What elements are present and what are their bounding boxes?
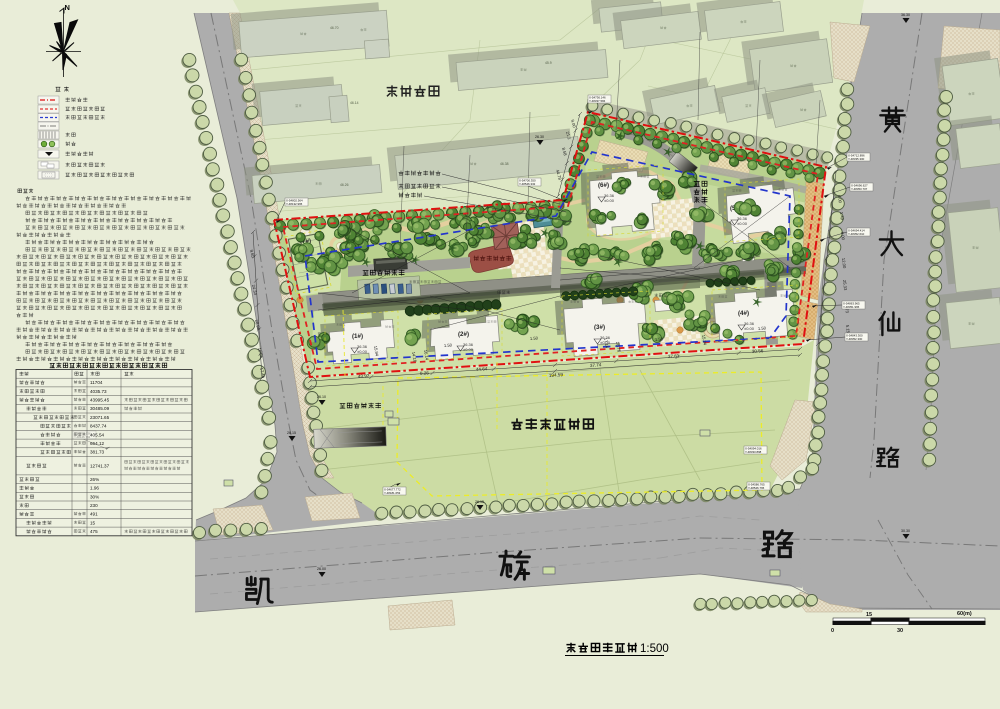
svg-text:4.00: 4.00 — [837, 195, 843, 204]
svg-text:26.10: 26.10 — [317, 395, 326, 399]
svg-text:30.56: 30.56 — [752, 348, 764, 354]
svg-text:Y-48337.584: Y-48337.584 — [589, 99, 606, 103]
svg-text:Y-48333.898: Y-48333.898 — [745, 450, 762, 454]
svg-text:46.38: 46.38 — [500, 162, 509, 166]
svg-text:26%: 26% — [90, 477, 99, 482]
svg-text:15: 15 — [90, 520, 96, 525]
svg-text:46.26: 46.26 — [340, 183, 349, 187]
svg-text:381.73: 381.73 — [90, 450, 104, 455]
svg-text:45.9: 45.9 — [545, 61, 552, 65]
svg-text:30.30: 30.30 — [901, 529, 910, 533]
svg-text:4035.73: 4035.73 — [90, 389, 107, 394]
svg-text:Y-48353.707: Y-48353.707 — [851, 187, 868, 191]
svg-text:26.15: 26.15 — [287, 431, 296, 435]
svg-text:26.30: 26.30 — [535, 135, 544, 139]
svg-text:±0.00: ±0.00 — [357, 349, 368, 354]
svg-text:15: 15 — [866, 612, 872, 618]
svg-text:1.96: 1.96 — [90, 486, 99, 491]
svg-text:194.59: 194.59 — [549, 372, 564, 378]
svg-text:8437.74: 8437.74 — [90, 424, 107, 429]
svg-text:37.74: 37.74 — [590, 362, 602, 368]
svg-text:405.54: 405.54 — [90, 432, 104, 437]
svg-text:Y-48546.332: Y-48546.332 — [519, 182, 536, 186]
svg-text:60(m): 60(m) — [957, 611, 972, 617]
svg-text:(6#): (6#) — [598, 182, 609, 189]
svg-text:46.70: 46.70 — [330, 26, 339, 30]
svg-text:Y-48352.610: Y-48352.610 — [848, 232, 865, 236]
svg-text:Y-48352.300: Y-48352.300 — [846, 337, 863, 341]
svg-text:43.92: 43.92 — [358, 373, 370, 379]
svg-text:(2#): (2#) — [458, 331, 469, 338]
svg-text:(4#): (4#) — [738, 310, 749, 317]
svg-text:±0.00: ±0.00 — [737, 221, 748, 226]
svg-text:0: 0 — [831, 628, 834, 634]
svg-text:1.50: 1.50 — [758, 325, 767, 331]
svg-text:1.50: 1.50 — [655, 336, 664, 342]
svg-text:0.26: 0.26 — [420, 370, 430, 376]
svg-text:Y-48181.653: Y-48181.653 — [384, 491, 401, 495]
svg-text:(1#): (1#) — [352, 333, 363, 340]
svg-text:±0.00: ±0.00 — [604, 198, 615, 203]
svg-text:30485.09: 30485.09 — [90, 406, 110, 411]
svg-text:26.15: 26.15 — [475, 500, 484, 504]
svg-text:1.50: 1.50 — [444, 342, 453, 348]
svg-text:±0.00: ±0.00 — [744, 326, 755, 331]
svg-text:44.64: 44.64 — [476, 366, 488, 372]
svg-text:1.49: 1.49 — [839, 212, 845, 221]
svg-text:12741.37: 12741.37 — [90, 463, 110, 468]
svg-text:Y-48335.300: Y-48335.300 — [848, 157, 865, 161]
svg-text:±0.00: ±0.00 — [463, 347, 474, 352]
svg-text:46.14: 46.14 — [350, 101, 359, 105]
svg-text:36.30: 36.30 — [901, 13, 910, 17]
svg-text:37.61: 37.61 — [668, 353, 680, 359]
svg-text:Y-48351.965: Y-48351.965 — [843, 305, 860, 309]
svg-text:30%: 30% — [90, 494, 99, 499]
svg-text:Y-48546.765: Y-48546.765 — [748, 486, 765, 490]
svg-text:1:500: 1:500 — [640, 643, 669, 655]
svg-text:475: 475 — [90, 529, 98, 534]
svg-text:43995.45: 43995.45 — [90, 398, 110, 403]
svg-text:230: 230 — [90, 503, 98, 508]
svg-text:26.00: 26.00 — [317, 567, 326, 571]
svg-text:1.50: 1.50 — [530, 335, 539, 341]
svg-text:664.12: 664.12 — [90, 441, 104, 446]
svg-text:30: 30 — [897, 628, 903, 634]
svg-text:11704: 11704 — [90, 380, 103, 385]
svg-text:(3#): (3#) — [594, 324, 605, 331]
svg-text:Y-48132.965: Y-48132.965 — [286, 202, 303, 206]
svg-text:N: N — [65, 3, 70, 12]
svg-text:23071.65: 23071.65 — [90, 415, 110, 420]
svg-text:491: 491 — [90, 512, 98, 517]
